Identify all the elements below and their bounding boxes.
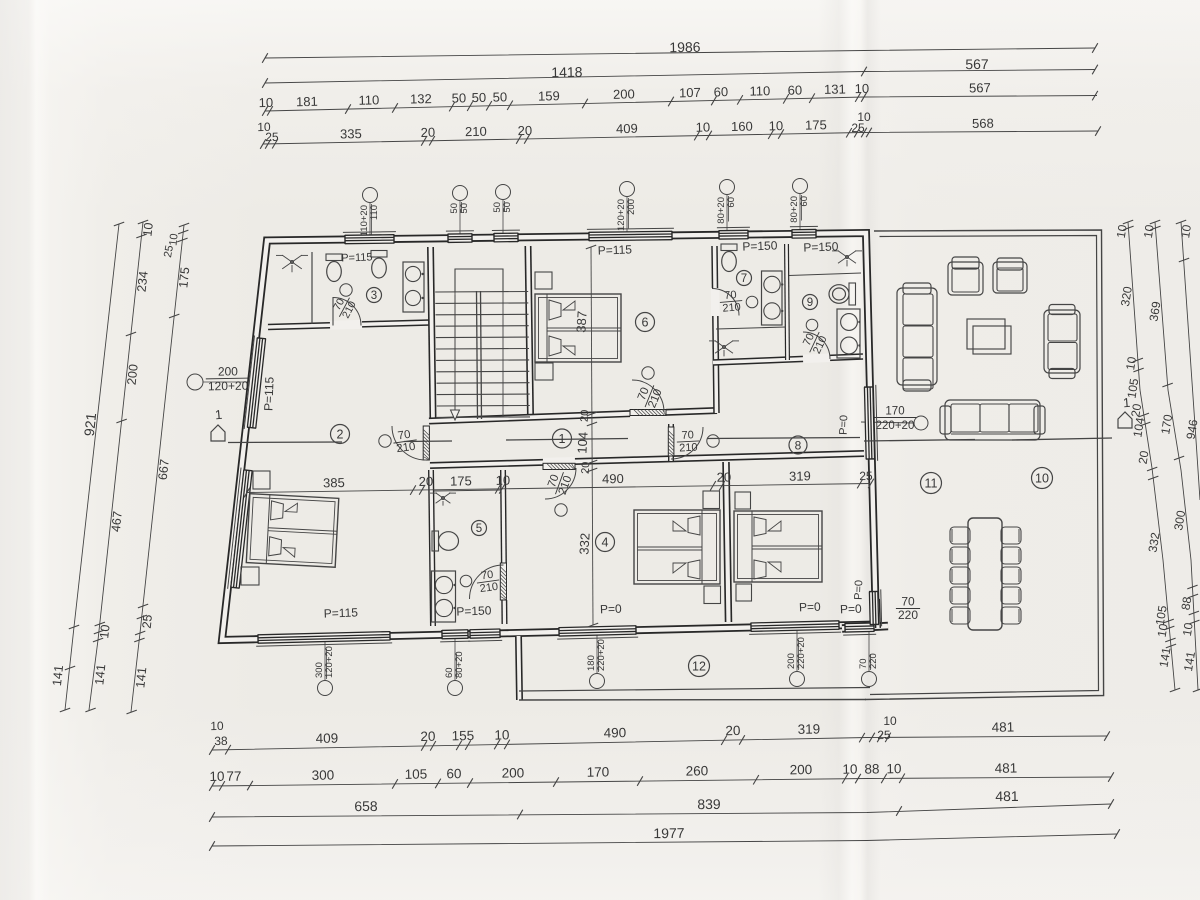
svg-text:10: 10 — [1180, 621, 1196, 637]
svg-text:175: 175 — [176, 266, 192, 288]
svg-text:60: 60 — [446, 766, 461, 781]
svg-text:200: 200 — [613, 86, 635, 101]
svg-text:210: 210 — [679, 442, 698, 455]
svg-text:667: 667 — [156, 458, 172, 480]
svg-text:181: 181 — [296, 94, 318, 109]
svg-text:25: 25 — [140, 614, 155, 629]
svg-text:1977: 1977 — [653, 825, 684, 841]
svg-text:481: 481 — [995, 788, 1019, 804]
svg-text:319: 319 — [789, 468, 811, 483]
svg-text:2: 2 — [337, 428, 344, 442]
svg-text:11: 11 — [925, 477, 938, 491]
svg-text:200: 200 — [502, 765, 525, 780]
svg-text:141: 141 — [133, 666, 149, 688]
svg-text:481: 481 — [992, 719, 1015, 734]
svg-text:332: 332 — [576, 533, 592, 555]
svg-text:20: 20 — [579, 409, 592, 422]
svg-text:50: 50 — [492, 202, 503, 213]
svg-text:210: 210 — [396, 441, 417, 456]
svg-text:385: 385 — [323, 475, 345, 490]
svg-text:141: 141 — [50, 664, 66, 686]
svg-text:P=0: P=0 — [840, 602, 862, 617]
svg-text:25: 25 — [265, 130, 279, 144]
svg-text:104: 104 — [1130, 416, 1147, 438]
svg-text:20: 20 — [420, 729, 435, 744]
svg-text:70: 70 — [681, 429, 694, 442]
svg-text:P=0: P=0 — [600, 602, 622, 617]
svg-text:50: 50 — [459, 203, 470, 214]
svg-text:50: 50 — [472, 90, 487, 105]
svg-text:300: 300 — [312, 768, 335, 783]
svg-text:10: 10 — [769, 118, 784, 133]
svg-text:7: 7 — [741, 273, 747, 285]
svg-text:567: 567 — [965, 56, 989, 72]
svg-text:120+20: 120+20 — [208, 379, 249, 394]
svg-text:10: 10 — [696, 119, 711, 134]
svg-text:1986: 1986 — [669, 39, 701, 55]
svg-text:170: 170 — [885, 406, 904, 418]
svg-text:210: 210 — [722, 301, 741, 315]
svg-text:P=0: P=0 — [853, 580, 866, 600]
svg-text:170: 170 — [1158, 413, 1175, 435]
svg-text:104: 104 — [574, 432, 590, 454]
svg-text:490: 490 — [604, 725, 627, 740]
svg-text:180: 180 — [586, 655, 597, 671]
svg-text:20: 20 — [518, 123, 533, 138]
svg-text:107: 107 — [679, 85, 701, 100]
svg-text:10: 10 — [1123, 355, 1139, 371]
svg-text:10: 10 — [883, 714, 897, 728]
svg-text:120+20: 120+20 — [324, 646, 335, 678]
svg-text:70: 70 — [858, 658, 869, 669]
svg-text:25: 25 — [162, 244, 176, 258]
svg-text:60: 60 — [788, 82, 803, 97]
svg-text:110: 110 — [749, 83, 770, 98]
svg-text:409: 409 — [316, 731, 339, 746]
svg-text:80+20: 80+20 — [789, 196, 800, 223]
svg-text:4: 4 — [602, 536, 609, 550]
svg-text:200: 200 — [626, 199, 637, 215]
svg-text:490: 490 — [602, 471, 624, 486]
svg-text:319: 319 — [798, 721, 821, 736]
svg-text:481: 481 — [995, 761, 1018, 776]
svg-text:10: 10 — [886, 761, 901, 776]
svg-text:120+20: 120+20 — [616, 199, 627, 231]
svg-text:141: 141 — [1157, 646, 1174, 668]
svg-text:10: 10 — [855, 81, 870, 96]
svg-text:10: 10 — [1035, 472, 1049, 486]
svg-text:1: 1 — [1122, 395, 1131, 411]
svg-text:P=0: P=0 — [799, 600, 821, 615]
svg-text:60: 60 — [726, 197, 737, 208]
svg-text:20: 20 — [580, 461, 593, 474]
svg-text:10: 10 — [210, 719, 224, 733]
svg-text:10: 10 — [167, 233, 180, 246]
svg-text:P=150: P=150 — [742, 238, 778, 253]
svg-text:38: 38 — [214, 734, 228, 748]
svg-text:10: 10 — [1114, 223, 1130, 239]
svg-text:10: 10 — [209, 769, 224, 784]
svg-text:369: 369 — [1147, 300, 1164, 322]
svg-text:77: 77 — [226, 769, 241, 784]
svg-text:300: 300 — [314, 662, 325, 678]
svg-text:105: 105 — [405, 767, 428, 782]
svg-text:20: 20 — [1136, 449, 1152, 465]
svg-text:131: 131 — [824, 81, 846, 96]
svg-text:6: 6 — [642, 316, 649, 330]
svg-text:8: 8 — [795, 438, 802, 452]
svg-text:839: 839 — [697, 796, 721, 812]
svg-text:10: 10 — [140, 222, 155, 237]
svg-text:335: 335 — [340, 126, 362, 141]
svg-text:70: 70 — [724, 289, 737, 302]
svg-text:658: 658 — [354, 798, 378, 814]
svg-text:10: 10 — [496, 473, 511, 488]
svg-text:P=115: P=115 — [598, 242, 633, 257]
svg-text:159: 159 — [538, 88, 560, 103]
svg-text:3: 3 — [371, 290, 377, 302]
svg-text:P=0: P=0 — [838, 415, 851, 435]
svg-text:80+20: 80+20 — [716, 197, 727, 224]
svg-text:210: 210 — [465, 124, 487, 139]
svg-text:70: 70 — [397, 429, 411, 443]
svg-text:1: 1 — [214, 407, 223, 423]
svg-text:10: 10 — [1141, 223, 1157, 239]
svg-text:10: 10 — [259, 95, 274, 110]
svg-text:12: 12 — [692, 660, 706, 674]
svg-text:110: 110 — [369, 205, 380, 220]
svg-text:P=150: P=150 — [803, 239, 839, 254]
svg-text:332: 332 — [1146, 531, 1163, 553]
svg-text:50: 50 — [493, 89, 508, 104]
svg-text:10: 10 — [1155, 622, 1171, 638]
svg-text:9: 9 — [807, 297, 813, 309]
svg-text:175: 175 — [450, 473, 472, 488]
svg-text:300: 300 — [1171, 509, 1188, 531]
svg-text:220: 220 — [898, 608, 918, 622]
svg-text:10: 10 — [842, 762, 857, 777]
svg-text:P=115: P=115 — [341, 251, 373, 264]
svg-text:88: 88 — [864, 761, 879, 776]
svg-text:260: 260 — [686, 763, 709, 778]
svg-text:141: 141 — [1181, 650, 1198, 672]
svg-text:110: 110 — [358, 92, 379, 107]
svg-text:210: 210 — [479, 581, 499, 595]
svg-text:P=115: P=115 — [261, 376, 276, 411]
svg-text:200: 200 — [790, 762, 813, 777]
svg-text:220: 220 — [868, 653, 879, 669]
svg-text:170: 170 — [587, 764, 610, 779]
svg-text:921: 921 — [81, 412, 99, 437]
svg-text:387: 387 — [573, 311, 589, 333]
svg-text:60: 60 — [444, 667, 455, 678]
svg-text:409: 409 — [616, 121, 638, 136]
svg-text:946: 946 — [1184, 418, 1200, 440]
svg-text:50: 50 — [502, 202, 513, 213]
svg-text:567: 567 — [969, 80, 991, 95]
svg-text:80+20: 80+20 — [454, 651, 465, 678]
svg-text:1418: 1418 — [551, 64, 583, 81]
svg-text:P=115: P=115 — [324, 605, 359, 620]
svg-text:200: 200 — [786, 653, 797, 669]
svg-text:10: 10 — [494, 727, 509, 742]
svg-text:175: 175 — [805, 117, 827, 132]
svg-text:88: 88 — [1178, 595, 1194, 611]
svg-text:105: 105 — [1153, 604, 1170, 626]
svg-text:467: 467 — [109, 510, 125, 532]
svg-text:160: 160 — [731, 119, 753, 134]
svg-text:141: 141 — [92, 663, 108, 685]
svg-text:70: 70 — [901, 595, 915, 609]
svg-text:1: 1 — [559, 432, 566, 446]
svg-text:234: 234 — [135, 270, 151, 292]
svg-text:50: 50 — [449, 203, 460, 214]
svg-text:200: 200 — [125, 363, 141, 385]
svg-text:220+20: 220+20 — [596, 639, 607, 671]
svg-text:132: 132 — [410, 91, 432, 106]
svg-text:P=150: P=150 — [456, 603, 492, 618]
svg-text:60: 60 — [799, 196, 810, 207]
svg-text:200: 200 — [218, 364, 239, 378]
svg-text:568: 568 — [972, 116, 994, 131]
svg-text:20: 20 — [419, 474, 434, 489]
svg-text:10: 10 — [1178, 223, 1194, 239]
svg-text:20: 20 — [421, 125, 436, 140]
svg-text:320: 320 — [1118, 285, 1135, 307]
svg-text:220+20: 220+20 — [796, 637, 807, 669]
svg-text:5: 5 — [476, 523, 482, 535]
svg-text:220+20: 220+20 — [876, 420, 915, 432]
svg-text:25: 25 — [851, 121, 865, 135]
svg-text:70: 70 — [480, 569, 494, 583]
svg-text:20: 20 — [725, 723, 740, 738]
